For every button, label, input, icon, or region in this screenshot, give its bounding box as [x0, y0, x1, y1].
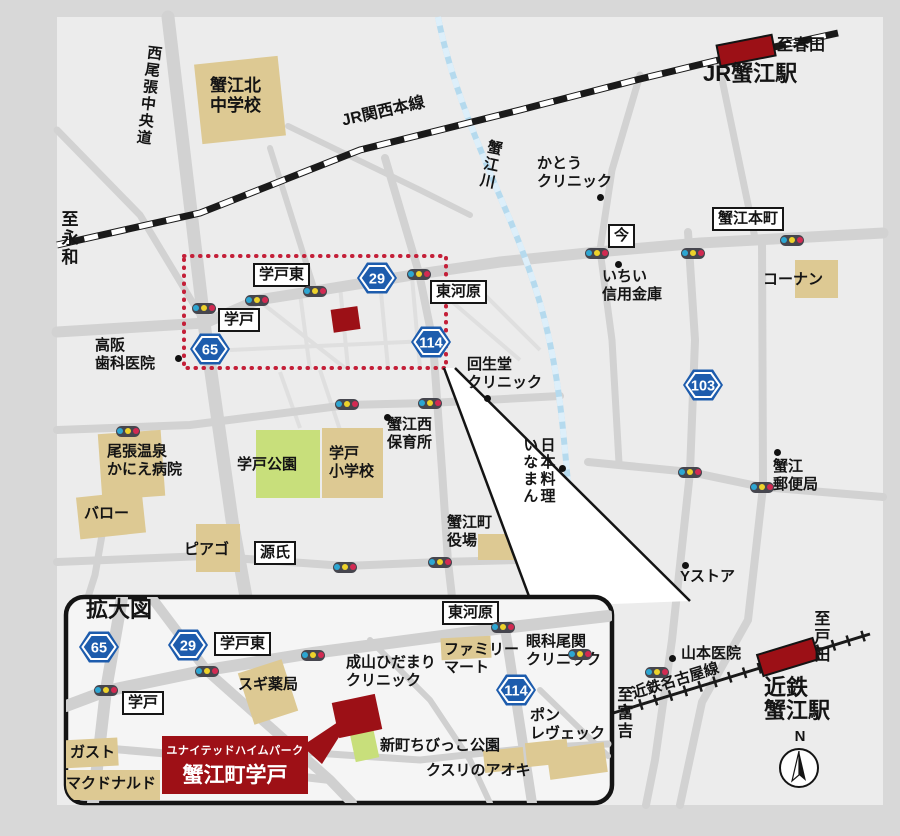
- route-shield-114: 114: [410, 324, 452, 360]
- signal-lamp: [662, 669, 668, 675]
- pain-lveque-bakery: ポン レヴェック: [530, 707, 605, 743]
- poi-dot: [484, 395, 491, 402]
- route-shield-114: 114: [495, 672, 537, 708]
- kato-clinic: かとう クリニック: [537, 155, 612, 191]
- signal-lamp: [352, 401, 358, 407]
- poi-dot: [597, 194, 604, 201]
- ima-intersection: 今: [608, 224, 635, 248]
- signal-lamp: [767, 484, 773, 490]
- signal-lamp: [117, 428, 123, 434]
- to-toda: 至戸田: [810, 610, 828, 664]
- traffic-signal-icon: [645, 667, 669, 678]
- poi-dot: [559, 465, 566, 472]
- signal-lamp: [427, 400, 433, 406]
- inset-gakuto-higashi-intersection: 学戸東: [214, 632, 271, 656]
- route-shield-65: 65: [78, 629, 120, 665]
- signal-lamp: [342, 564, 348, 570]
- mcdonalds: マクドナルド: [66, 775, 156, 793]
- gakuto-elementary-school: 学戸 小学校: [329, 445, 374, 481]
- gakuto-intersection: 学戸: [218, 308, 260, 332]
- route-shield-number: 65: [202, 343, 218, 359]
- owari-onsen-kanie-hospital: 尾張温泉 かにえ病院: [107, 443, 182, 479]
- signal-lamp: [344, 401, 350, 407]
- route-shield-number: 65: [91, 641, 107, 657]
- traffic-signal-icon: [407, 269, 431, 280]
- signal-lamp: [246, 297, 252, 303]
- traffic-signal-icon: [333, 562, 357, 573]
- to-haruta: 至春田: [777, 36, 825, 55]
- signal-lamp: [201, 305, 207, 311]
- inset-title: 拡大図: [86, 598, 152, 621]
- signal-lamp: [312, 288, 318, 294]
- signal-lamp: [209, 305, 215, 311]
- signal-lamp: [435, 400, 441, 406]
- traffic-signal-icon: [192, 303, 216, 314]
- traffic-signal-icon: [303, 286, 327, 297]
- signal-lamp: [500, 624, 506, 630]
- route-shield-65: 65: [189, 331, 231, 367]
- takasaka-dental-clinic: 高阪 歯科医院: [95, 337, 155, 373]
- signal-lamp: [602, 250, 608, 256]
- traffic-signal-icon: [681, 248, 705, 259]
- konan-store: コーナン: [763, 271, 823, 289]
- signal-lamp: [204, 668, 210, 674]
- signal-lamp: [690, 250, 696, 256]
- traffic-signal-icon: [780, 235, 804, 246]
- route-shield-29: 29: [167, 627, 209, 663]
- signal-lamp: [125, 428, 131, 434]
- poi-dot: [384, 414, 391, 421]
- valor-store: バロー: [84, 505, 129, 523]
- route-shield-number: 114: [419, 336, 442, 352]
- gakuto-higashi-intersection: 学戸東: [253, 263, 310, 287]
- traffic-signal-icon: [301, 650, 325, 661]
- poi-dot: [615, 261, 622, 268]
- signal-lamp: [408, 271, 414, 277]
- property-name-line2: 蟹江町学戸: [183, 759, 288, 789]
- kanie-town-hall: 蟹江町 役場: [447, 514, 492, 550]
- naruyama-hidamari-clinic: 成山ひだまり クリニック: [346, 654, 436, 690]
- signal-lamp: [334, 564, 340, 570]
- signal-lamp: [646, 669, 652, 675]
- signal-lamp: [695, 469, 701, 475]
- route-shield-number: 103: [691, 379, 715, 395]
- signal-lamp: [304, 288, 310, 294]
- poi-dot: [682, 562, 689, 569]
- signal-lamp: [751, 484, 757, 490]
- traffic-signal-icon: [195, 666, 219, 677]
- signal-lamp: [350, 564, 356, 570]
- kanie-honmachi-intersection: 蟹江本町: [712, 207, 784, 231]
- route-shield-103: 103: [682, 367, 724, 403]
- route-shield-29: 29: [356, 260, 398, 296]
- traffic-signal-icon: [94, 685, 118, 696]
- higashi-kawara-intersection: 東河原: [430, 280, 487, 304]
- signal-lamp: [492, 624, 498, 630]
- compass-north-label: N: [790, 728, 810, 745]
- signal-lamp: [193, 305, 199, 311]
- poi-dot: [175, 355, 182, 362]
- traffic-signal-icon: [116, 426, 140, 437]
- signal-lamp: [95, 687, 101, 693]
- signal-lamp: [687, 469, 693, 475]
- signal-lamp: [508, 624, 514, 630]
- inset-higashi-kawara-intersection: 東河原: [442, 601, 499, 625]
- traffic-signal-icon: [585, 248, 609, 259]
- kanie-kita-junior-high: 蟹江北 中学校: [210, 76, 261, 117]
- signal-lamp: [416, 271, 422, 277]
- inset-gakuto-intersection: 学戸: [122, 691, 164, 715]
- signal-lamp: [262, 297, 268, 303]
- to-eiwa: 至永和: [58, 210, 78, 267]
- traffic-signal-icon: [335, 399, 359, 410]
- property-callout-box: ユナイテッドハイムパーク 蟹江町学戸: [162, 736, 308, 794]
- kaiseido-clinic: 回生堂 クリニック: [467, 356, 542, 392]
- signal-lamp: [682, 250, 688, 256]
- traffic-signal-icon: [568, 649, 592, 660]
- kanie-nishi-nursery: 蟹江西 保育所: [387, 416, 432, 452]
- genji-intersection: 源氏: [254, 541, 296, 565]
- signal-lamp: [759, 484, 765, 490]
- traffic-signal-icon: [678, 467, 702, 478]
- piago-store: ピアゴ: [184, 541, 229, 559]
- jr-kanie-station-label: JR蟹江駅: [703, 62, 797, 85]
- signal-lamp: [698, 250, 704, 256]
- signal-lamp: [586, 250, 592, 256]
- traffic-signal-icon: [245, 295, 269, 306]
- signal-lamp: [577, 651, 583, 657]
- to-tomiyoshi: 至富吉: [613, 686, 631, 740]
- gusto-restaurant: ガスト: [70, 744, 115, 762]
- signal-lamp: [133, 428, 139, 434]
- signal-lamp: [585, 651, 591, 657]
- japanese-restaurant-inaman: 日本料理 いなまん: [521, 437, 556, 505]
- signal-lamp: [310, 652, 316, 658]
- signal-lamp: [654, 669, 660, 675]
- signal-lamp: [424, 271, 430, 277]
- signal-lamp: [254, 297, 260, 303]
- traffic-signal-icon: [418, 398, 442, 409]
- ichii-shinkin-bank: いちい 信用金庫: [602, 268, 662, 304]
- signal-lamp: [437, 559, 443, 565]
- signal-lamp: [212, 668, 218, 674]
- kanie-post-office: 蟹江 郵便局: [773, 458, 818, 494]
- kanie-area-map: 西尾張中央道蟹江北 中学校JR関西本線蟹江川至春田JR蟹江駅かとう クリニック今…: [0, 0, 900, 836]
- signal-lamp: [429, 559, 435, 565]
- y-store: Yストア: [680, 568, 735, 586]
- signal-lamp: [445, 559, 451, 565]
- route-shield-number: 29: [180, 639, 196, 655]
- signal-lamp: [320, 288, 326, 294]
- kintetsu-kanie-station-label: 近鉄 蟹江駅: [764, 676, 830, 722]
- signal-lamp: [336, 401, 342, 407]
- poi-dot: [774, 449, 781, 456]
- gakuto-park: 学戸公園: [237, 456, 297, 474]
- property-building-main-marker: [331, 306, 361, 333]
- signal-lamp: [111, 687, 117, 693]
- sugi-pharmacy: スギ薬局: [238, 676, 298, 694]
- signal-lamp: [789, 237, 795, 243]
- signal-lamp: [103, 687, 109, 693]
- property-name-line1: ユナイテッドハイムパーク: [166, 742, 303, 758]
- signal-lamp: [679, 469, 685, 475]
- poi-dot: [669, 655, 676, 662]
- shinmachi-chibikko-park: 新町ちびっこ公園: [380, 737, 500, 755]
- kusuri-no-aoki: クスリのアオキ: [426, 762, 531, 780]
- signal-lamp: [196, 668, 202, 674]
- signal-lamp: [569, 651, 575, 657]
- traffic-signal-icon: [750, 482, 774, 493]
- traffic-signal-icon: [491, 622, 515, 633]
- traffic-signal-icon: [428, 557, 452, 568]
- route-shield-number: 29: [369, 272, 385, 288]
- signal-lamp: [594, 250, 600, 256]
- signal-lamp: [797, 237, 803, 243]
- signal-lamp: [419, 400, 425, 406]
- signal-lamp: [781, 237, 787, 243]
- route-shield-number: 114: [504, 684, 527, 700]
- compass-icon: [780, 749, 818, 787]
- signal-lamp: [318, 652, 324, 658]
- signal-lamp: [302, 652, 308, 658]
